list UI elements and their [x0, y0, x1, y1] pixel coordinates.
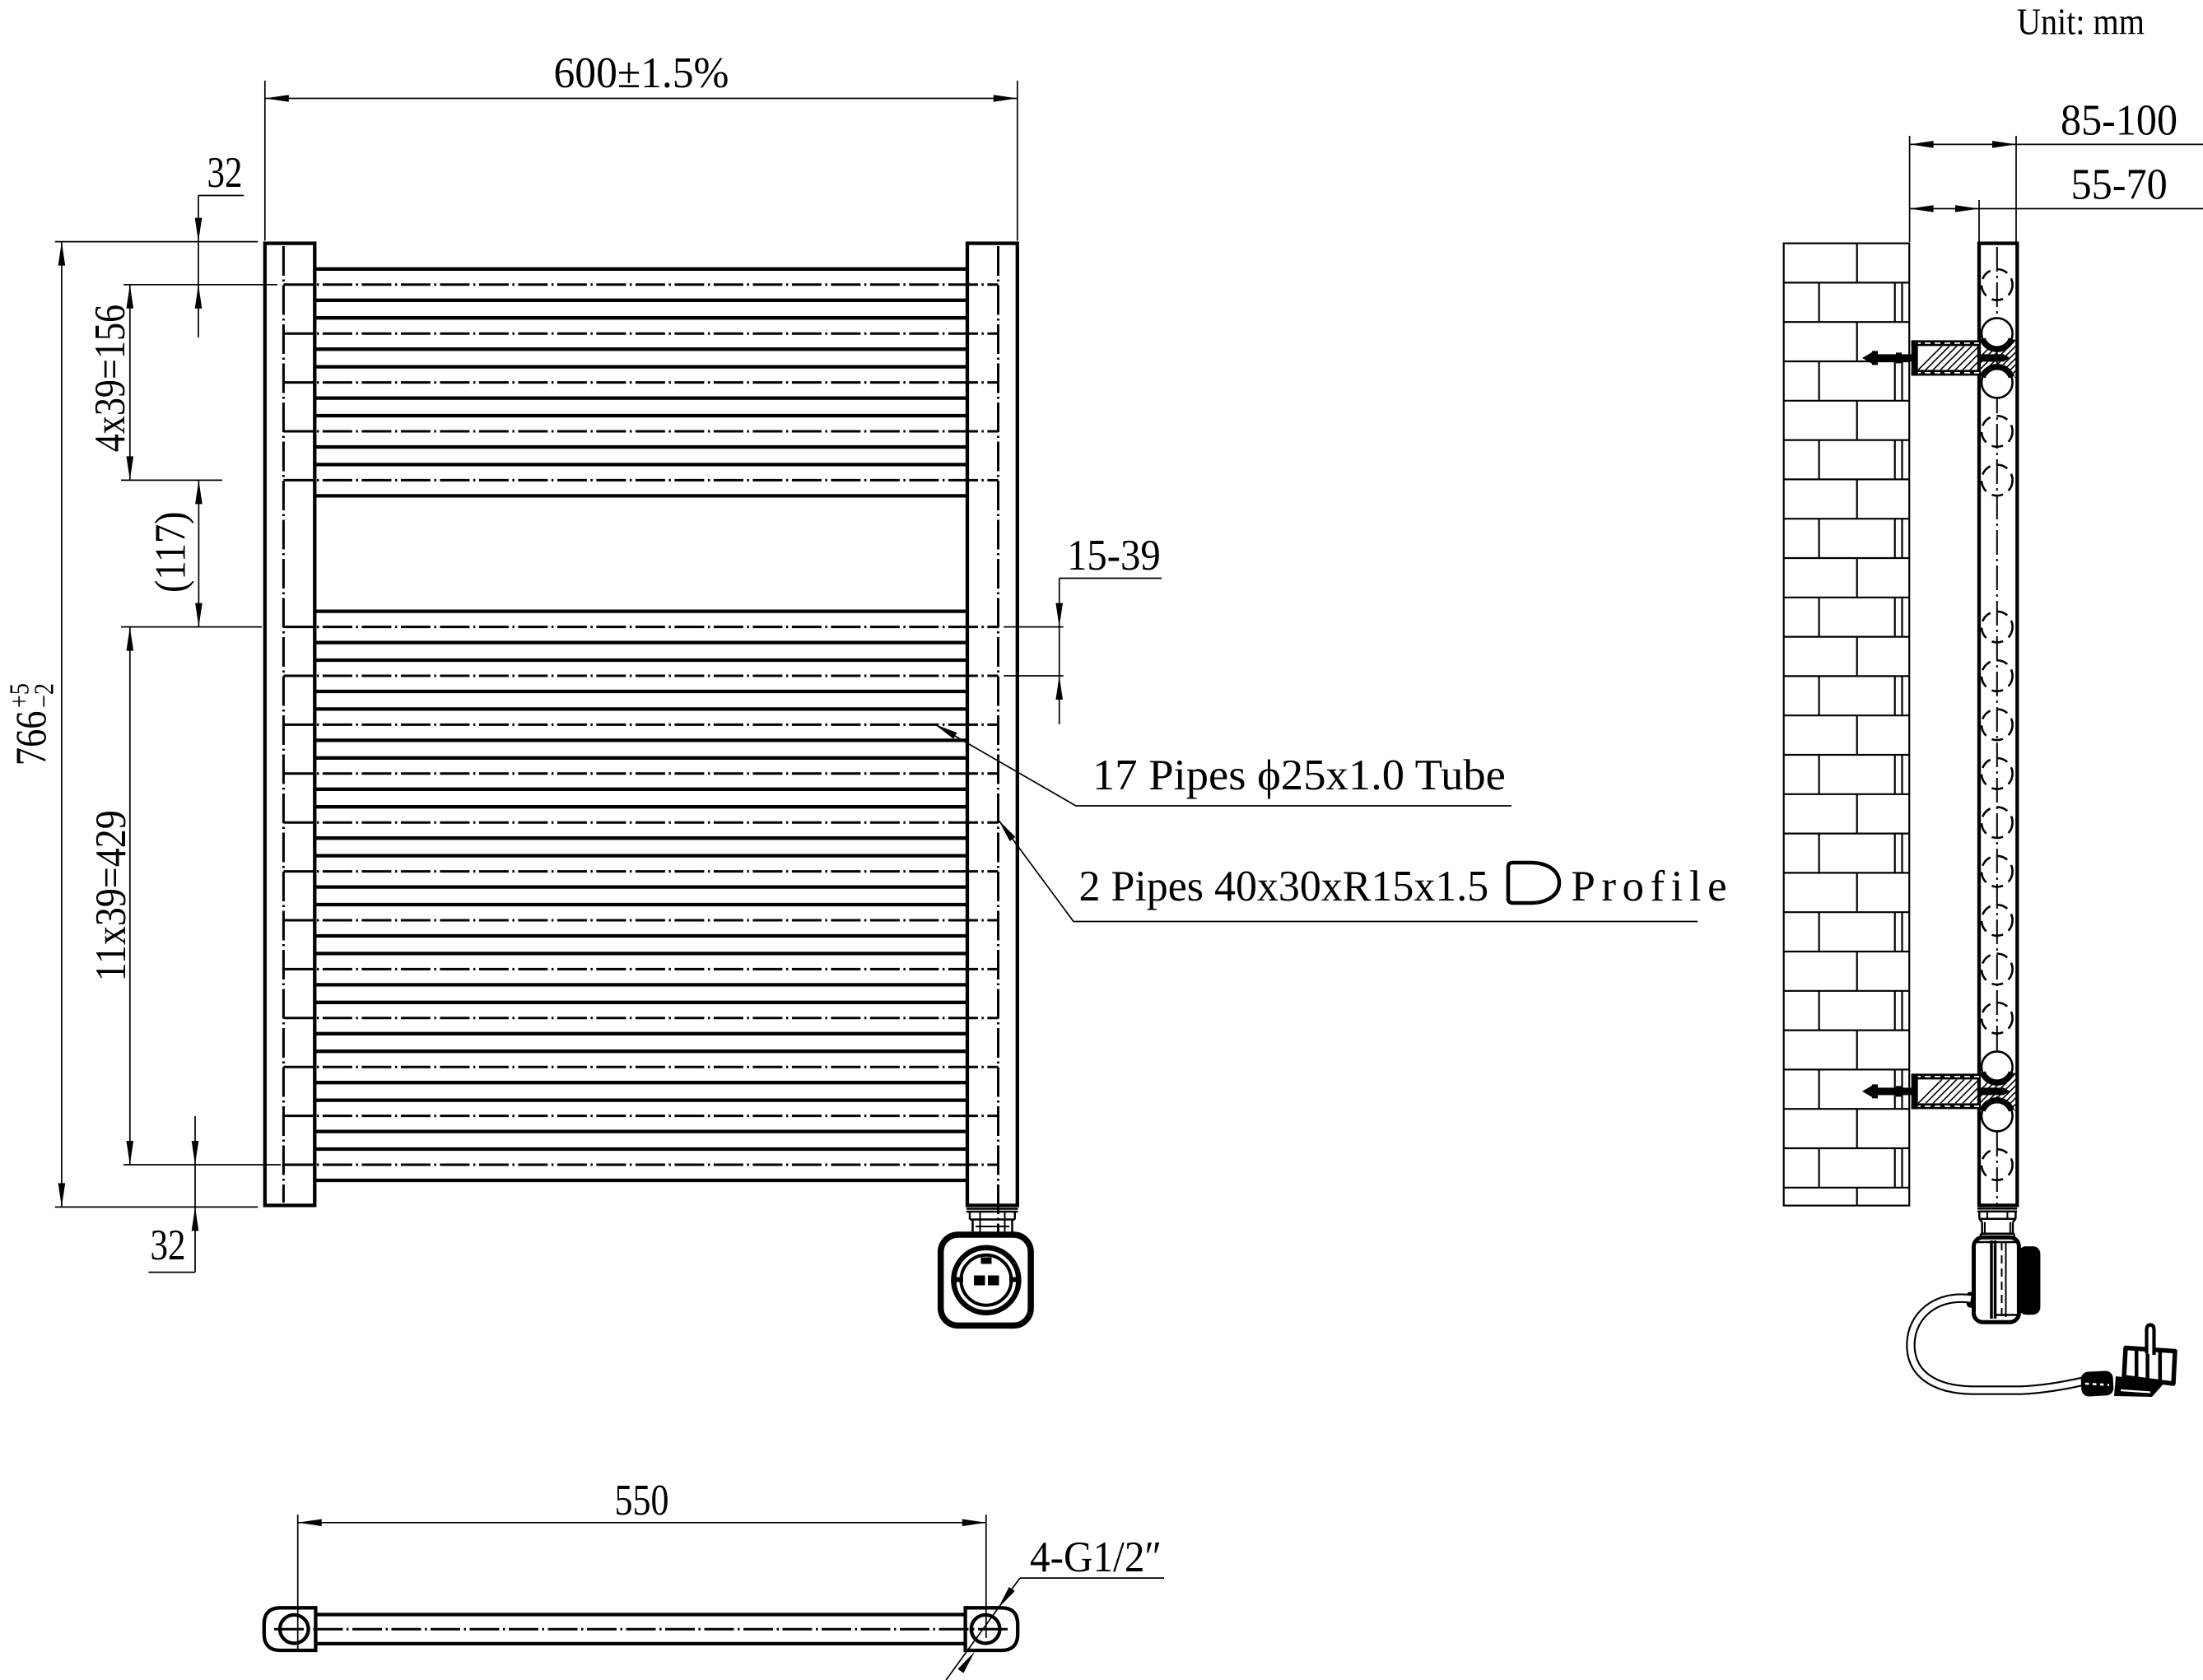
svg-text:17 Pipes ϕ25x1.0 Tube: 17 Pipes ϕ25x1.0 Tube	[1092, 751, 1506, 799]
svg-text:2 Pipes 40x30xR15x1.5: 2 Pipes 40x30xR15x1.5	[1079, 863, 1489, 911]
svg-text:550: 550	[615, 1476, 669, 1524]
svg-text:(117): (117)	[147, 511, 195, 593]
svg-text:4x39=156: 4x39=156	[86, 305, 134, 452]
svg-text:−2: −2	[28, 683, 59, 708]
svg-text:32: 32	[207, 149, 243, 197]
svg-text:4-G1/2″: 4-G1/2″	[1030, 1533, 1162, 1581]
svg-text:Unit: mm: Unit: mm	[2017, 2, 2145, 43]
svg-text:15-39: 15-39	[1067, 532, 1161, 579]
svg-text:Profile: Profile	[1571, 863, 1733, 910]
svg-text:11x39=429: 11x39=429	[86, 810, 135, 981]
svg-text:85-100: 85-100	[2061, 96, 2177, 145]
svg-text:766: 766	[7, 711, 56, 766]
svg-text:55-70: 55-70	[2071, 161, 2168, 208]
svg-text:32: 32	[151, 1222, 186, 1269]
svg-text:600±1.5%: 600±1.5%	[554, 49, 729, 97]
